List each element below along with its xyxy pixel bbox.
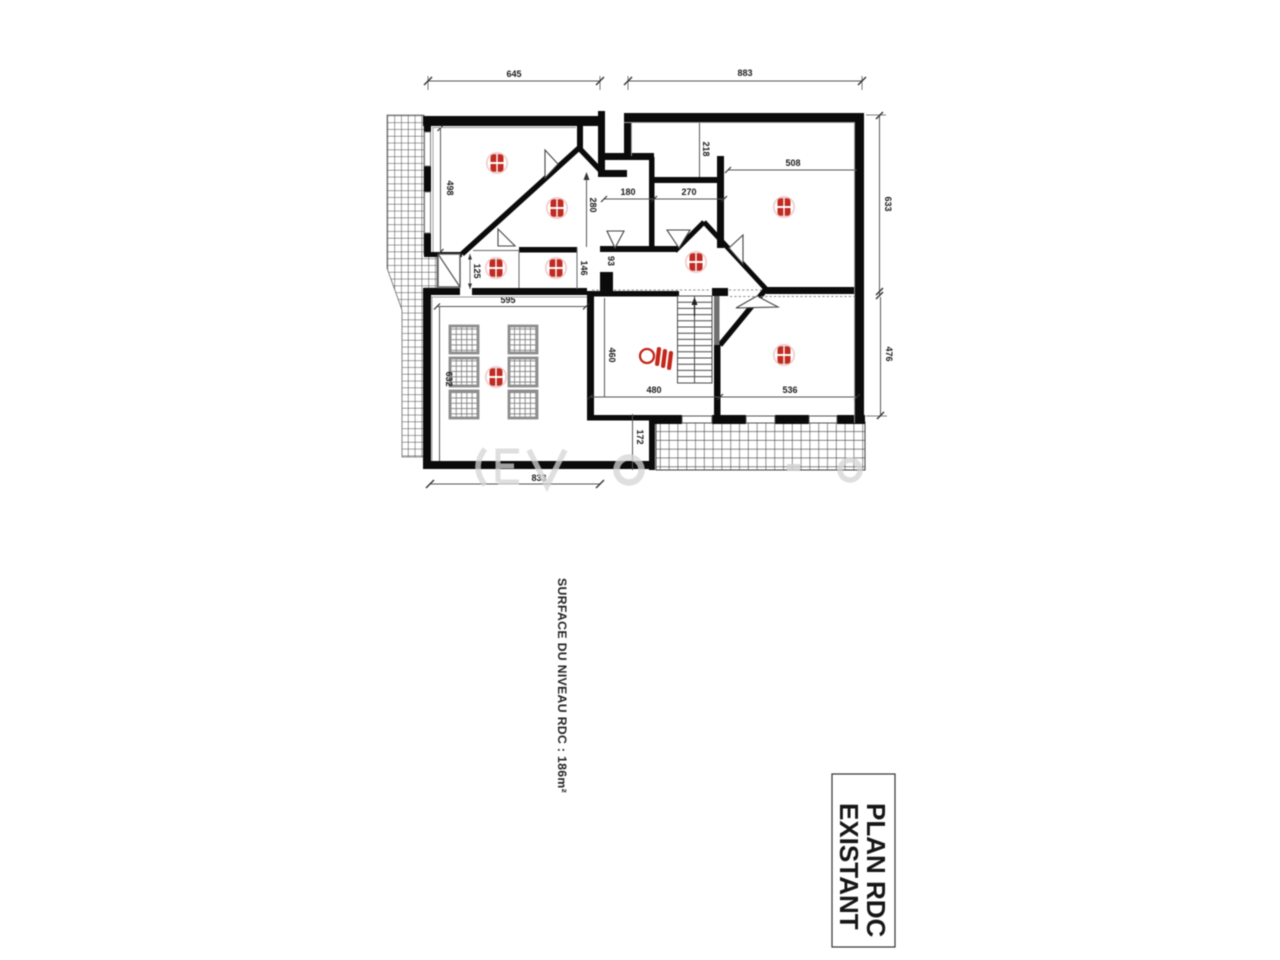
svg-text:146: 146 [579,260,589,275]
svg-text:172: 172 [635,429,645,444]
svg-text:476: 476 [884,346,894,361]
svg-text:93: 93 [606,256,616,266]
svg-text:SURFACE DU NIVEAU RDC : 186m²: SURFACE DU NIVEAU RDC : 186m² [555,578,569,793]
svg-text:180: 180 [620,187,635,197]
svg-text:632: 632 [444,371,454,386]
svg-text:270: 270 [681,187,696,197]
svg-text:218: 218 [701,141,711,156]
svg-text:125: 125 [472,263,482,278]
svg-text:PLAN RDC: PLAN RDC [861,803,891,938]
svg-text:633: 633 [883,196,893,211]
svg-text:498: 498 [445,180,455,195]
svg-text:EXISTANT: EXISTANT [834,803,864,930]
svg-text:508: 508 [785,158,800,168]
svg-text:280: 280 [588,197,598,212]
svg-text:460: 460 [607,347,617,362]
svg-text:536: 536 [782,385,797,395]
svg-text:480: 480 [646,385,661,395]
svg-text:595: 595 [500,295,515,305]
svg-text:645: 645 [506,69,521,79]
svg-text:883: 883 [737,68,752,78]
